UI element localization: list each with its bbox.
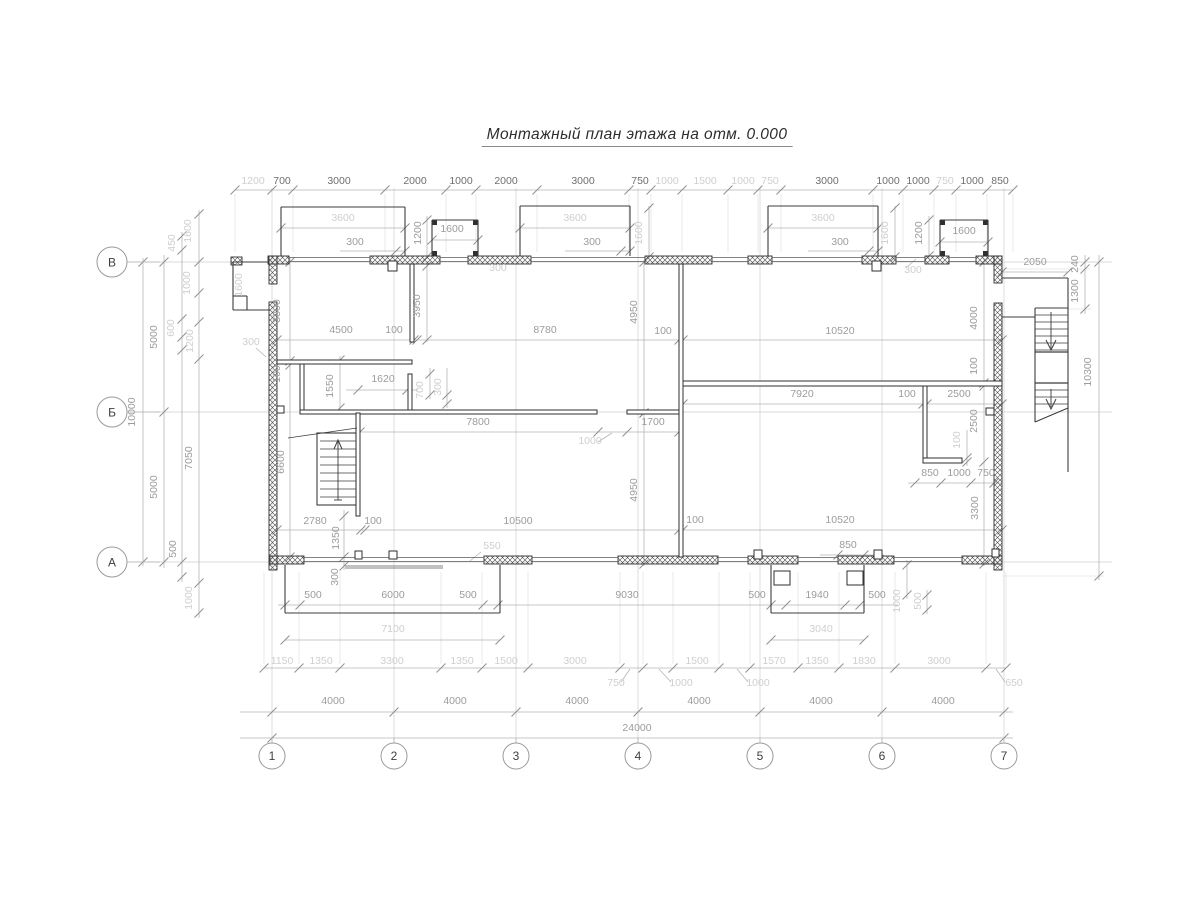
dim-label: 4000	[687, 695, 711, 707]
dim-label: 1350	[450, 655, 474, 667]
dim-label: 1000	[947, 467, 971, 479]
dim-label: 6000	[381, 589, 405, 601]
column-post	[986, 408, 994, 415]
dim-label: 1600	[233, 273, 245, 297]
dim-label: 1350	[309, 655, 333, 667]
column-post	[754, 550, 762, 559]
dim-label: 750	[761, 175, 779, 187]
dim-label: 7050	[183, 446, 195, 470]
dim-label: 500	[304, 589, 322, 601]
dim-label: 1000	[731, 175, 755, 187]
dim-label: 5000	[148, 475, 160, 499]
dim-label: 1200	[184, 329, 196, 353]
dim-label: 1620	[371, 373, 395, 385]
dim-label: 2500	[947, 388, 971, 400]
dim-label: 850	[839, 539, 857, 551]
dim-label: 1000	[655, 175, 679, 187]
dim-label: 1300	[1069, 279, 1081, 303]
dim-label: 1600	[182, 219, 194, 243]
interior-wall	[408, 374, 412, 412]
dim-label: 100	[968, 357, 980, 375]
dim-label: 1350	[805, 655, 829, 667]
dim-label: 1000	[578, 435, 602, 447]
dim-label: 7920	[790, 388, 814, 400]
dim-label: 500	[167, 540, 179, 558]
column-post	[872, 261, 881, 271]
dim-label: 10300	[1082, 357, 1094, 386]
dim-label: 1000	[960, 175, 984, 187]
dim-label: 1200	[913, 221, 925, 245]
stair-cut-line	[1035, 408, 1068, 422]
exterior-wall	[484, 556, 532, 564]
interior-wall	[923, 458, 962, 463]
column-post	[847, 571, 863, 585]
dim-label: 1150	[271, 655, 294, 667]
dim-label: 750	[631, 175, 649, 187]
dim-label: 750	[607, 677, 625, 689]
axis-bubble-label: 3	[513, 749, 520, 763]
dim-label: 300	[831, 236, 849, 248]
axis-bubble-label: 4	[635, 749, 642, 763]
column-post	[277, 406, 284, 413]
dim-label: 500	[459, 589, 477, 601]
entry-corner-post	[983, 251, 988, 256]
interior-wall	[300, 364, 304, 410]
dim-label: 1500	[693, 175, 717, 187]
dim-label: 100	[271, 365, 283, 383]
exterior-wall	[618, 556, 718, 564]
dim-label: 100	[898, 388, 916, 400]
dim-label: 1000	[891, 589, 903, 613]
dim-label: 8780	[533, 324, 557, 336]
axis-bubbles: 1234567ВБА	[97, 247, 1017, 769]
dim-label: 1600	[633, 221, 645, 245]
dim-label: 7800	[466, 416, 490, 428]
dim-label: 100	[654, 325, 672, 337]
dim-label: 3950	[411, 294, 423, 318]
entry-corner-post	[473, 220, 478, 225]
floor-plan-svg: 1200700300020001000200030007501000150010…	[0, 0, 1200, 900]
dim-label: 10500	[503, 515, 532, 527]
dim-label: 1200	[412, 221, 424, 245]
interior-wall	[627, 410, 679, 414]
exterior-wall	[994, 303, 1002, 570]
dim-label: 1600	[879, 221, 891, 245]
dim-label: 4000	[443, 695, 467, 707]
leader-line	[256, 348, 266, 357]
dim-label: 300	[583, 236, 601, 248]
column-post	[388, 261, 397, 271]
dim-label: 1000	[876, 175, 900, 187]
dim-label: 9030	[615, 589, 639, 601]
dim-label: 600	[165, 319, 177, 337]
entry-corner-post	[983, 220, 988, 225]
dim-label: 300	[432, 378, 444, 396]
column-post	[389, 551, 397, 559]
dim-label: 850	[991, 175, 1009, 187]
dim-label: 1600	[952, 225, 976, 237]
dim-label: 1200	[241, 175, 265, 187]
dim-label: 850	[921, 467, 939, 479]
dim-label: 1940	[805, 589, 829, 601]
axis-bubble-label: 5	[757, 749, 764, 763]
dim-label: 4000	[968, 306, 980, 330]
dim-label: 1000	[183, 586, 195, 610]
dim-label: 700	[414, 381, 426, 399]
exterior-wall	[838, 556, 894, 564]
dim-label: 1600	[440, 223, 464, 235]
dim-label: 3600	[331, 212, 355, 224]
dim-label: 4000	[565, 695, 589, 707]
dim-label: 1550	[324, 374, 336, 398]
dim-label: 1700	[641, 416, 665, 428]
dim-label: 1830	[852, 655, 876, 667]
drawing-canvas: Монтажный план этажа на отм. 0.000 12007…	[0, 0, 1200, 900]
dim-label: 500	[868, 589, 886, 601]
axis-bubble-label: В	[108, 256, 116, 270]
dim-label: 3000	[927, 655, 951, 667]
dim-label: 300	[242, 336, 260, 348]
column-post	[774, 571, 790, 585]
dim-label: 100	[364, 515, 382, 527]
dim-label: 1000	[906, 175, 930, 187]
dim-label: 1000	[669, 677, 693, 689]
dim-label: 500	[912, 592, 924, 610]
dim-label: 300	[489, 262, 507, 274]
dim-label: 100	[686, 514, 704, 526]
exterior-wall	[994, 256, 1002, 283]
dim-label: 1350	[330, 526, 342, 550]
dim-label: 3300	[271, 299, 283, 323]
dim-label: 4950	[628, 300, 640, 324]
exterior-wall	[269, 256, 277, 284]
dim-label: 10520	[825, 325, 854, 337]
axis-bubble-label: А	[108, 556, 116, 570]
dim-label: 1000	[449, 175, 473, 187]
dim-label: 100	[385, 324, 403, 336]
entry-corner-post	[432, 220, 437, 225]
dim-label: 3000	[571, 175, 595, 187]
exterior-wall	[925, 256, 949, 264]
dim-label: 3600	[811, 212, 835, 224]
dim-label: 2050	[1023, 256, 1047, 268]
dim-label: 3000	[563, 655, 587, 667]
dim-label: 4950	[628, 478, 640, 502]
dim-label: 300	[329, 568, 341, 586]
dim-label: 450	[166, 234, 178, 252]
dim-label: 750	[977, 467, 995, 479]
entry-corner-post	[432, 251, 437, 256]
dim-label: 3600	[563, 212, 587, 224]
dim-label: 4500	[329, 324, 353, 336]
dim-label: 100	[951, 431, 963, 449]
axis-bubble-label: 2	[391, 749, 398, 763]
dim-label: 3300	[969, 496, 981, 520]
column-post	[874, 550, 882, 559]
dim-label: 2780	[303, 515, 327, 527]
axis-bubble-label: Б	[108, 406, 116, 420]
dim-label: 700	[273, 175, 291, 187]
entry-corner-post	[473, 251, 478, 256]
dim-label: 5000	[148, 325, 160, 349]
dim-label: 2000	[403, 175, 427, 187]
entry-corner-post	[940, 220, 945, 225]
dim-label: 1000	[746, 677, 770, 689]
dim-label: 1500	[685, 655, 709, 667]
dim-label: 300	[346, 236, 364, 248]
dim-label: 650	[1005, 677, 1023, 689]
exterior-wall	[370, 256, 440, 264]
dim-label: 1500	[494, 655, 518, 667]
axis-bubble-label: 7	[1001, 749, 1008, 763]
dim-label: 24000	[622, 722, 651, 734]
dim-label: 750	[936, 175, 954, 187]
dim-label: 4000	[321, 695, 345, 707]
dim-label: 3300	[380, 655, 404, 667]
exterior-wall	[748, 256, 772, 264]
dim-label: 1570	[762, 655, 786, 667]
dim-label: 240	[1069, 255, 1081, 273]
dim-label: 10520	[825, 514, 854, 526]
dim-label: 6600	[275, 450, 287, 474]
dim-label: 3000	[327, 175, 351, 187]
interior-wall	[923, 386, 927, 463]
axis-bubble-label: 6	[879, 749, 886, 763]
column-post	[355, 551, 362, 559]
dim-label: 2500	[968, 409, 980, 433]
leader-line	[470, 552, 481, 561]
dim-label: 7100	[381, 623, 405, 635]
dim-label: 550	[483, 540, 501, 552]
exterior-wall	[645, 256, 712, 264]
exterior-wall	[269, 302, 277, 570]
interior-wall	[300, 410, 597, 414]
dim-label: 4000	[809, 695, 833, 707]
dim-label: 3040	[809, 623, 833, 635]
interior-wall	[683, 381, 1002, 386]
dim-label: 3000	[815, 175, 839, 187]
dim-label: 2000	[494, 175, 518, 187]
interior-wall	[277, 360, 412, 364]
interior-wall	[679, 264, 683, 557]
column-post	[992, 549, 999, 557]
dim-label: 300	[904, 264, 922, 276]
axis-bubble-label: 1	[269, 749, 276, 763]
dim-label: 1000	[181, 271, 193, 295]
dim-label: 500	[748, 589, 766, 601]
entry-corner-post	[940, 251, 945, 256]
dim-label: 4000	[931, 695, 955, 707]
